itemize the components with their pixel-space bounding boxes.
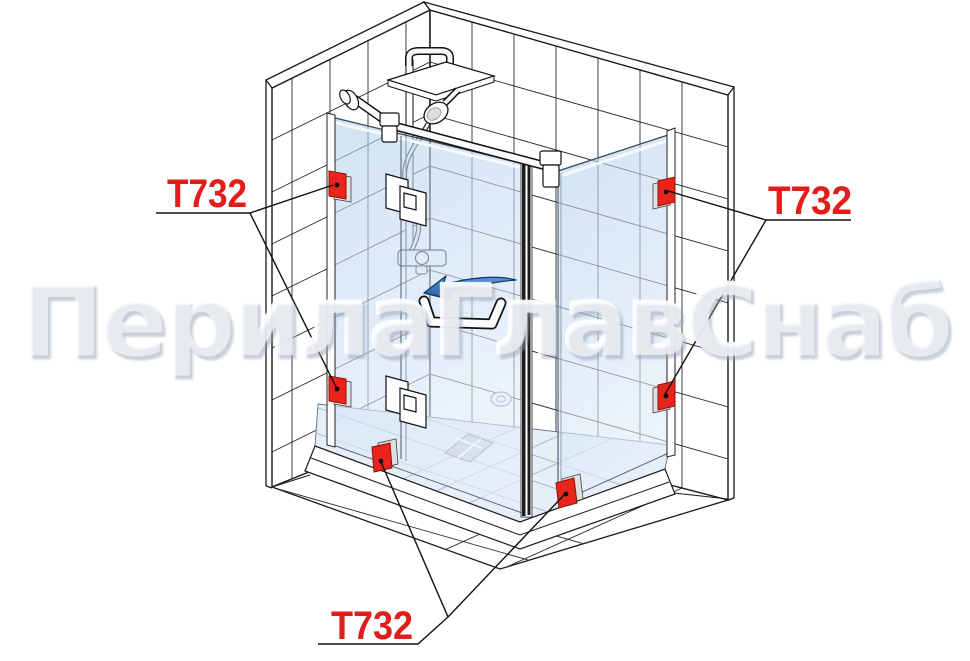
bar-glass-clamp-right bbox=[540, 151, 561, 187]
label-t732-left: T732 bbox=[167, 172, 247, 216]
label-t732-bottom: T732 bbox=[331, 604, 413, 648]
shower-enclosure-diagram: T732 T732 T732 bbox=[0, 0, 970, 661]
door-front-edge bbox=[521, 163, 532, 517]
label-t732-right: T732 bbox=[768, 179, 852, 223]
connector-floor-left bbox=[372, 443, 392, 472]
diagram-canvas: T732 T732 T732 ПерилаГлавСнаб bbox=[0, 0, 970, 661]
bar-glass-clamp-left bbox=[380, 113, 399, 142]
